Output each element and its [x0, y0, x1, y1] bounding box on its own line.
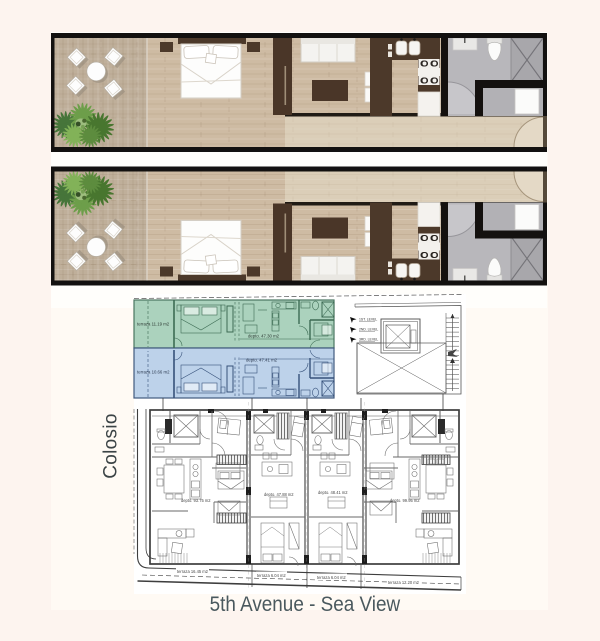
svg-text:depto. 47.41 m2: depto. 47.41 m2: [246, 358, 278, 363]
svg-text:depto. 48.41 m2: depto. 48.41 m2: [318, 490, 348, 495]
svg-text:depto. 47.30 m2: depto. 47.30 m2: [248, 334, 280, 339]
svg-text:2ND. LEVEL: 2ND. LEVEL: [359, 328, 378, 332]
svg-text:3RD. LEVEL: 3RD. LEVEL: [359, 338, 378, 342]
svg-text:1ST. LEVEL: 1ST. LEVEL: [359, 318, 377, 322]
svg-text:depto. 93.75 m2: depto. 93.75 m2: [181, 498, 211, 503]
svg-text:terraza 10.66 m2: terraza 10.66 m2: [137, 370, 170, 375]
svg-text:terraza 6.04 m2: terraza 6.04 m2: [317, 575, 346, 580]
svg-text:terraza 6.04 m2: terraza 6.04 m2: [257, 573, 286, 578]
svg-text:terraza 12.20 m2: terraza 12.20 m2: [388, 580, 420, 585]
svg-text:depto. 47.88 m2: depto. 47.88 m2: [264, 492, 294, 497]
svg-text:terraza 11.19 m2: terraza 11.19 m2: [137, 322, 170, 327]
svg-text:depto. 99.95 m2: depto. 99.95 m2: [390, 498, 420, 503]
svg-text:terraza 16.45 m2: terraza 16.45 m2: [177, 569, 209, 574]
